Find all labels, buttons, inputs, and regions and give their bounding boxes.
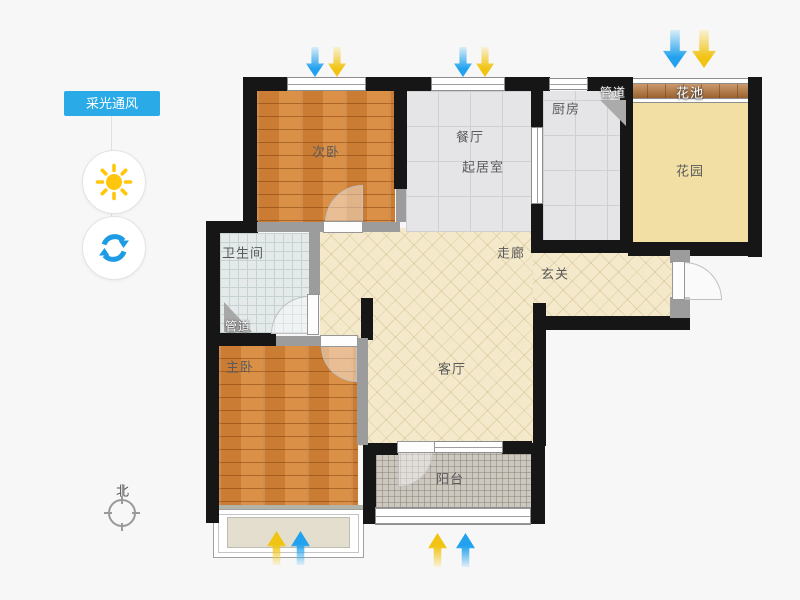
- pipe-shaft-top: [600, 100, 626, 126]
- wind-arrow-down-blue-large: [663, 30, 687, 68]
- compass-tick-top: [121, 496, 123, 504]
- wall-garden-bottom: [628, 242, 762, 256]
- room-label-living: 起居室: [462, 157, 504, 176]
- wall-balcony-right: [531, 443, 545, 524]
- wall-secondary-bottom-right: [362, 222, 400, 232]
- entrance-door-arc: [684, 262, 722, 300]
- rotate-icon: [97, 231, 131, 265]
- bay-window-inner: [227, 517, 350, 548]
- wall-balcony-top-left: [363, 443, 399, 455]
- balcony-door: [397, 441, 435, 453]
- kitchen-window: [549, 78, 588, 90]
- wall-secondary-right: [394, 77, 407, 189]
- kitchen-slider-window: [531, 127, 543, 204]
- room-label-pipe-bottom: 管道: [225, 318, 251, 335]
- room-label-flower-bed: 花池: [676, 83, 704, 102]
- wall-kitchen-left-top: [531, 77, 543, 128]
- wall-bathroom-right: [309, 231, 320, 295]
- wind-arrow-down-blue: [306, 47, 324, 77]
- compass-tick-left: [104, 512, 112, 514]
- sunlight-button[interactable]: [82, 150, 146, 214]
- wall-corridor-bottom: [543, 316, 690, 330]
- room-label-living-room: 客厅: [438, 359, 466, 378]
- room-label-balcony: 阳台: [436, 469, 464, 488]
- light-arrow-down-yellow: [476, 47, 494, 77]
- room-label-corridor: 走廊: [497, 243, 525, 262]
- compass-north-label: 北: [116, 481, 130, 500]
- wall-foyer-stub: [361, 298, 373, 340]
- secondary-bedroom-door: [323, 221, 363, 233]
- light-arrow-down-yellow: [328, 47, 346, 77]
- room-label-foyer: 玄关: [541, 264, 569, 283]
- room-label-master-bedroom: 主卧: [226, 357, 254, 376]
- compass-tick-right: [132, 512, 140, 514]
- wall-right-outer: [748, 77, 762, 257]
- living-window: [431, 77, 505, 91]
- master-bedroom-door: [320, 335, 358, 347]
- lighting-ventilation-tag[interactable]: 采光通风: [64, 91, 160, 116]
- entry-jamb-bottom: [670, 297, 690, 318]
- entrance-door[interactable]: [672, 261, 685, 300]
- room-label-bathroom: 卫生间: [222, 243, 264, 262]
- wall-secondary-right-lower: [396, 189, 406, 222]
- room-label-secondary-bedroom: 次卧: [312, 142, 340, 161]
- room-label-pipe-top: 管道: [600, 84, 626, 101]
- light-arrow-down-yellow-large: [692, 30, 716, 68]
- wind-arrow-up-blue: [456, 533, 475, 567]
- wall-balcony-top-right: [502, 441, 532, 454]
- rotate-button[interactable]: [82, 216, 146, 280]
- wall-master-left: [206, 338, 219, 523]
- room-label-garden: 花园: [676, 161, 704, 180]
- balcony-sill-bottom: [375, 507, 531, 525]
- room-label-kitchen: 厨房: [552, 99, 580, 118]
- balcony-window: [434, 441, 503, 453]
- wind-arrow-down-blue: [454, 47, 472, 77]
- wall-master-right: [357, 338, 368, 445]
- secondary-bedroom-window: [287, 77, 366, 91]
- room-label-dining: 餐厅: [456, 127, 484, 146]
- wall-bathroom-left: [206, 221, 220, 338]
- wall-master-top: [276, 336, 322, 346]
- wall-kitchen-bottom: [538, 240, 633, 253]
- wall-left-outer-top: [243, 77, 257, 233]
- sun-icon: [95, 163, 133, 201]
- light-arrow-up-yellow: [428, 533, 447, 567]
- compass-tick-bottom: [121, 523, 123, 531]
- wall-segment: [504, 77, 550, 91]
- bathroom-door: [307, 294, 319, 335]
- floor-plan-canvas: 次卧 餐厅 起居室 厨房 管道 花池 花园 卫生间 管道 走廊 玄关 主卧 客厅…: [0, 0, 800, 600]
- wall-livingroom-right: [533, 303, 546, 446]
